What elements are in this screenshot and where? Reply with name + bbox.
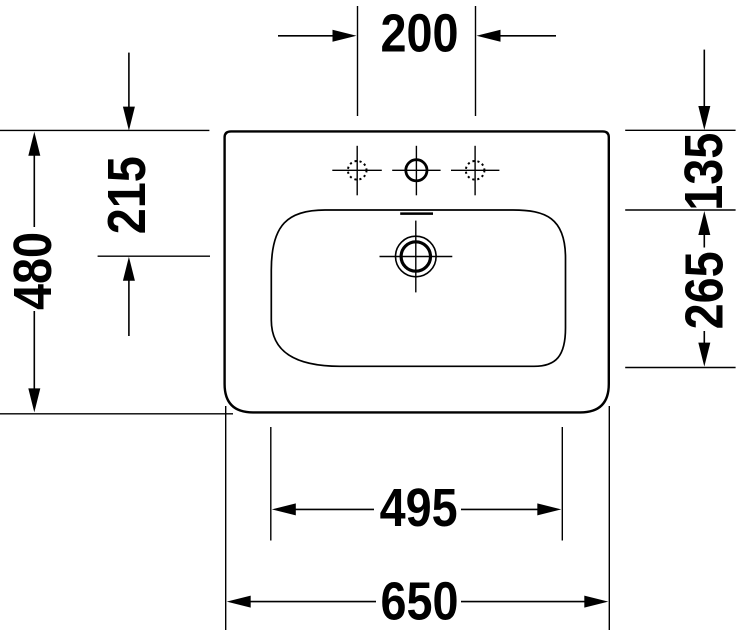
svg-text:480: 480: [3, 232, 63, 310]
svg-text:135: 135: [674, 133, 734, 211]
svg-text:215: 215: [97, 156, 157, 234]
svg-text:200: 200: [381, 4, 459, 64]
svg-text:265: 265: [674, 251, 734, 329]
svg-text:495: 495: [380, 478, 458, 538]
svg-text:650: 650: [381, 571, 459, 631]
